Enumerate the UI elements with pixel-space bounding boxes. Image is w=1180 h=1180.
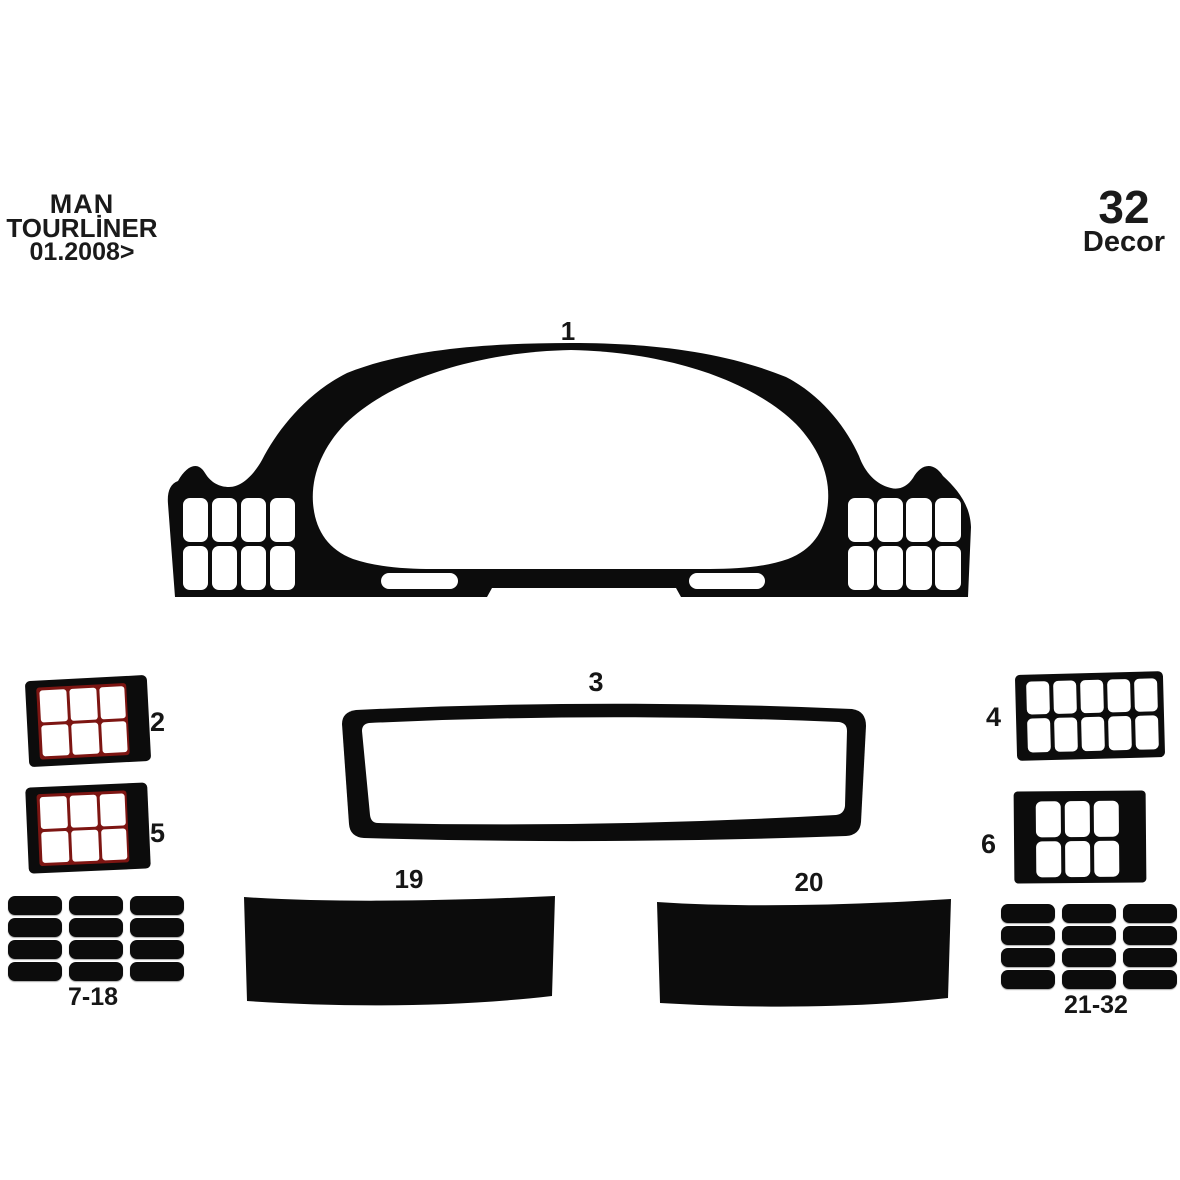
trim-button-blank xyxy=(69,918,123,937)
piece-21-32-label: 21-32 xyxy=(1046,993,1146,1018)
piece-1-right-slot xyxy=(689,573,765,589)
trim-button-blank xyxy=(130,918,184,937)
trim-button-blank xyxy=(1062,970,1116,989)
trim-button-blank xyxy=(1001,970,1055,989)
piece-3-label: 3 xyxy=(566,669,626,696)
piece-1-left-slot xyxy=(381,573,458,589)
piece-19-trim-panel xyxy=(242,891,558,1009)
piece-2-switch-frame xyxy=(23,671,156,772)
piece-4-label: 4 xyxy=(986,704,1001,731)
piece-2-label: 2 xyxy=(150,709,165,736)
trim-button-blank xyxy=(8,896,62,915)
trim-button-blank xyxy=(1001,904,1055,923)
piece-1-cluster-bezel xyxy=(165,336,978,601)
trim-button-blank xyxy=(1062,948,1116,967)
trim-button-blank xyxy=(69,896,123,915)
piece-6-label: 6 xyxy=(981,831,996,858)
trim-button-blank xyxy=(1001,926,1055,945)
trim-button-blank xyxy=(1001,948,1055,967)
piece-5-label: 5 xyxy=(150,820,165,847)
trim-button-blank xyxy=(130,962,184,981)
trim-button-blank xyxy=(130,896,184,915)
trim-button-blank xyxy=(1123,926,1177,945)
piece-5-switch-frame xyxy=(23,778,155,877)
piece-7-18-label: 7-18 xyxy=(43,985,143,1010)
piece-3-console-frame xyxy=(340,696,868,842)
decor-count: 32 xyxy=(1070,186,1178,228)
trim-button-blank xyxy=(69,962,123,981)
vehicle-model-block: MAN TOURLİNER 01.2008> xyxy=(0,192,164,264)
piece-6-switch-frame xyxy=(1013,789,1148,884)
trim-button-blank xyxy=(1123,904,1177,923)
piece-20-trim-panel xyxy=(655,895,953,1010)
trim-button-blank xyxy=(8,962,62,981)
brand-line-3: 01.2008> xyxy=(0,240,164,264)
piece-21-32-button-grid xyxy=(1001,904,1177,989)
trim-button-blank xyxy=(1062,926,1116,945)
decor-count-label: Decor xyxy=(1070,228,1178,256)
trim-button-blank xyxy=(1123,948,1177,967)
brand-line-2: TOURLİNER xyxy=(0,216,164,240)
decor-count-badge: 32 Decor xyxy=(1070,186,1178,256)
trim-button-blank xyxy=(130,940,184,959)
decor-kit-diagram: MAN TOURLİNER 01.2008> 32 Decor 1 xyxy=(0,0,1180,1180)
trim-button-blank xyxy=(8,918,62,937)
trim-button-blank xyxy=(8,940,62,959)
piece-20-label: 20 xyxy=(779,869,839,895)
trim-button-blank xyxy=(1123,970,1177,989)
trim-button-blank xyxy=(1062,904,1116,923)
piece-19-label: 19 xyxy=(379,866,439,892)
piece-7-18-button-grid xyxy=(8,896,184,981)
piece-4-switch-frame xyxy=(1013,669,1167,763)
trim-button-blank xyxy=(69,940,123,959)
